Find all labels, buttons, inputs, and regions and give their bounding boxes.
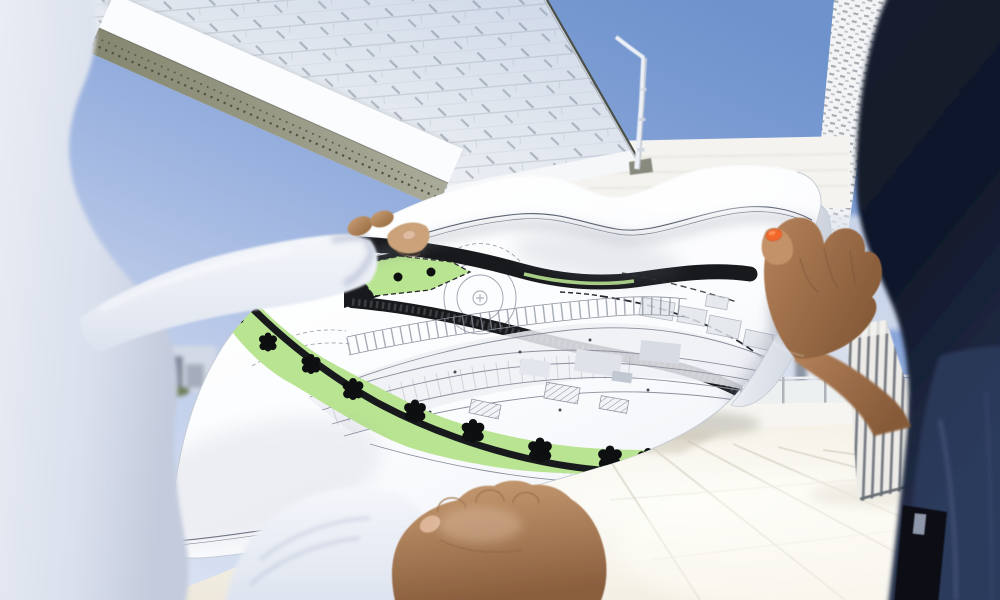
tree-symbol xyxy=(394,273,403,282)
rooftop-blueprint-photo xyxy=(0,0,1000,600)
tower-block xyxy=(186,364,204,388)
fist-highlight xyxy=(438,507,522,543)
belt-clip xyxy=(913,514,926,535)
photo-stage xyxy=(0,0,1000,600)
mast-collar xyxy=(641,88,647,91)
tree-symbol xyxy=(427,268,436,277)
mast-collar xyxy=(638,148,645,152)
mast-collar xyxy=(639,118,646,121)
